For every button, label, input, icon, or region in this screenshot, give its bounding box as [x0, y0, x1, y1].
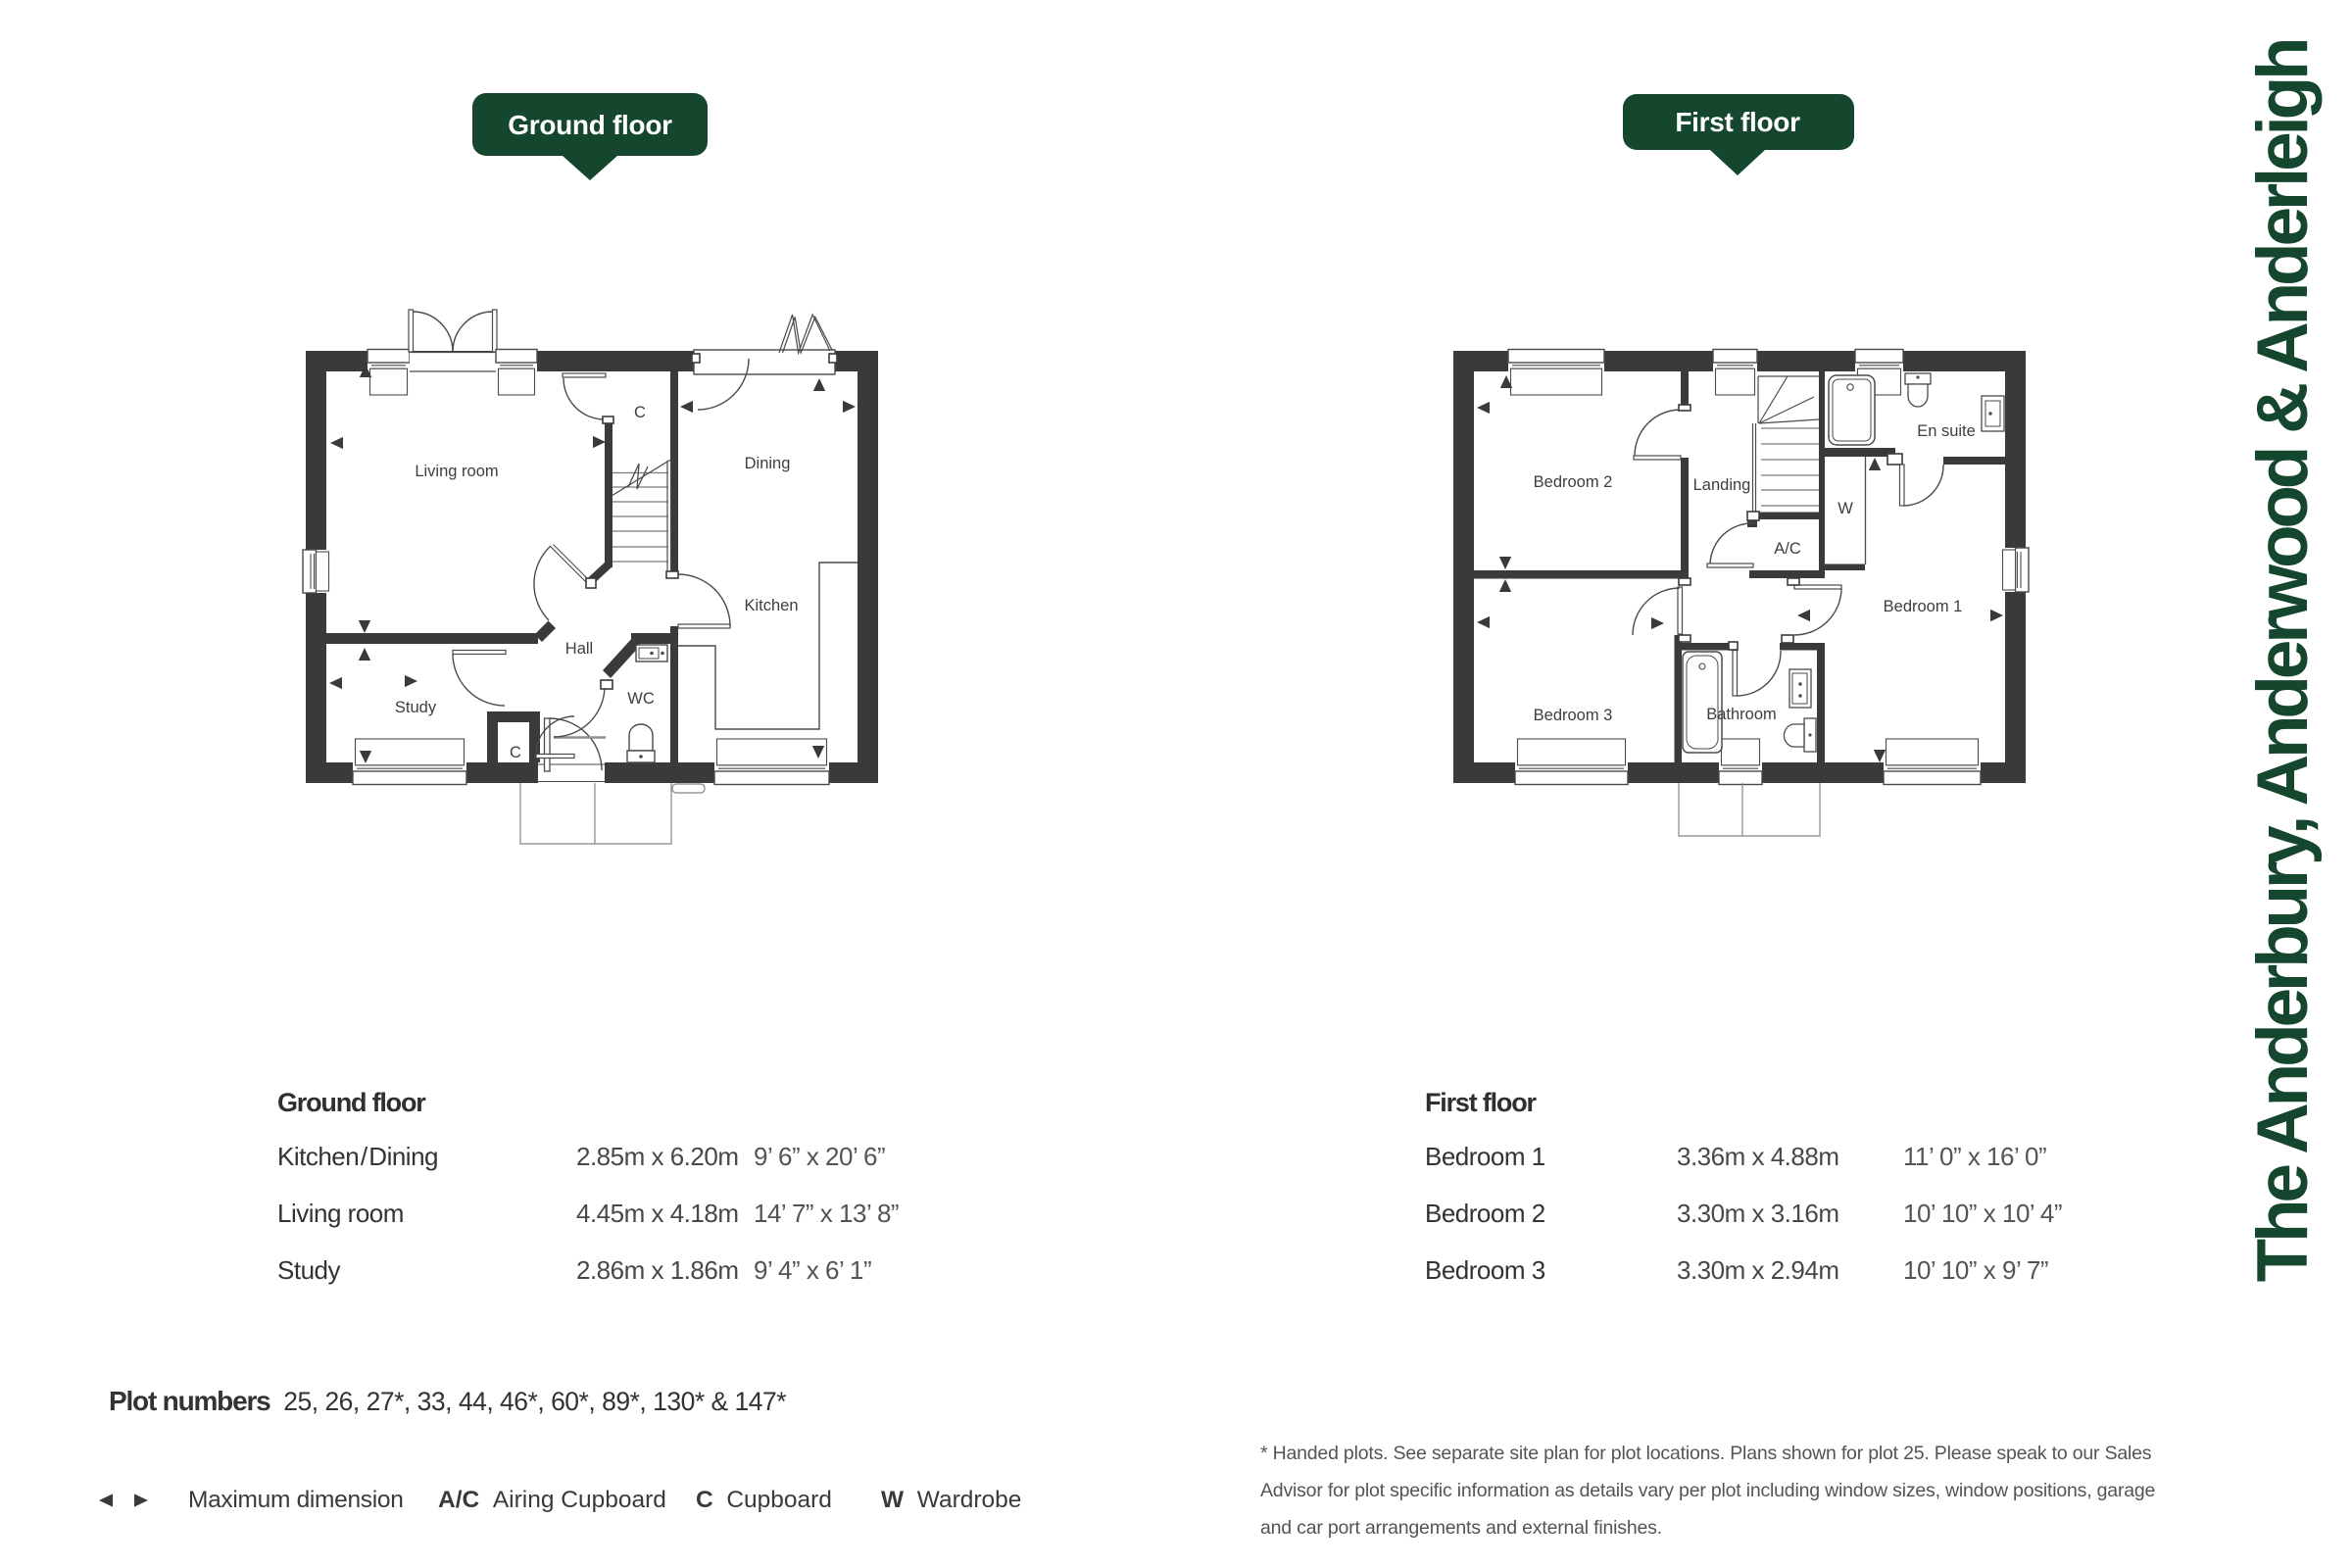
svg-text:C: C	[510, 744, 521, 761]
svg-text:Landing: Landing	[1693, 476, 1751, 494]
svg-text:Bedroom 1: Bedroom 1	[1884, 598, 1963, 615]
svg-text:Kitchen: Kitchen	[744, 597, 798, 614]
svg-text:Living room: Living room	[415, 463, 498, 480]
svg-text:Study: Study	[395, 699, 437, 716]
svg-text:Bedroom 3: Bedroom 3	[1534, 707, 1613, 724]
svg-text:W: W	[1837, 500, 1853, 517]
svg-text:Bedroom 2: Bedroom 2	[1534, 473, 1613, 491]
svg-text:Hall: Hall	[565, 640, 593, 658]
svg-text:Dining: Dining	[745, 455, 791, 472]
svg-text:C: C	[634, 404, 646, 421]
svg-text:A/C: A/C	[1774, 540, 1801, 558]
svg-text:Bathroom: Bathroom	[1706, 706, 1777, 723]
svg-text:En suite: En suite	[1917, 422, 1976, 440]
svg-text:WC: WC	[627, 690, 655, 708]
